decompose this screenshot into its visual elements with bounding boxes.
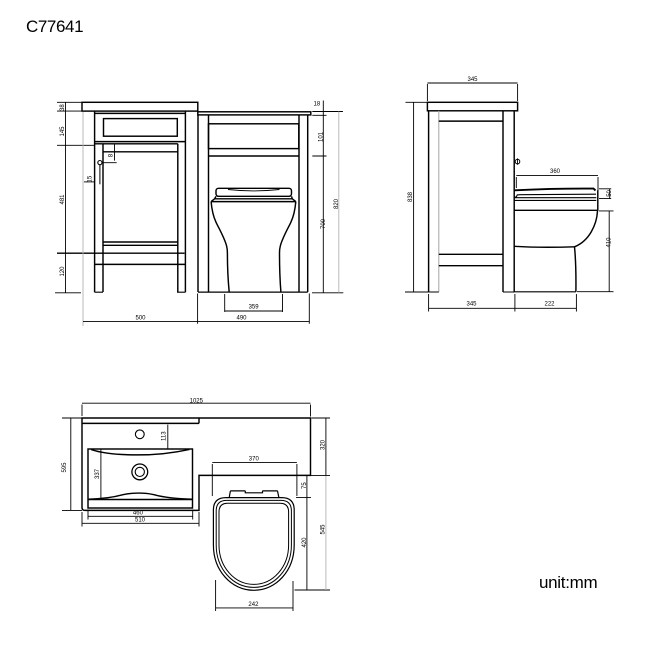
svg-text:unit:mm: unit:mm [539, 573, 597, 592]
svg-text:359: 359 [249, 305, 260, 311]
svg-text:18: 18 [314, 102, 321, 108]
svg-text:101: 101 [319, 131, 325, 142]
svg-text:490: 490 [236, 316, 247, 322]
svg-text:50: 50 [607, 189, 613, 196]
svg-text:700: 700 [321, 218, 327, 229]
svg-text:1025: 1025 [190, 398, 204, 404]
svg-text:222: 222 [544, 302, 555, 308]
svg-text:120: 120 [60, 266, 66, 277]
svg-text:15: 15 [87, 175, 93, 182]
svg-text:410: 410 [606, 237, 612, 248]
svg-text:242: 242 [248, 602, 259, 608]
svg-text:420: 420 [302, 537, 308, 548]
svg-text:838: 838 [408, 191, 414, 202]
svg-text:113: 113 [162, 431, 168, 441]
svg-text:481: 481 [60, 194, 66, 205]
svg-text:345: 345 [467, 77, 478, 83]
svg-text:145: 145 [60, 126, 66, 137]
svg-text:360: 360 [550, 169, 561, 175]
svg-text:C77641: C77641 [26, 17, 83, 36]
svg-text:320: 320 [321, 439, 327, 450]
svg-text:510: 510 [135, 517, 146, 523]
svg-text:460: 460 [133, 510, 144, 516]
svg-text:595: 595 [62, 462, 68, 473]
svg-text:337: 337 [95, 468, 101, 479]
svg-text:545: 545 [321, 524, 327, 535]
svg-text:820: 820 [334, 198, 340, 209]
svg-text:345: 345 [466, 302, 477, 308]
svg-text:500: 500 [135, 316, 146, 322]
svg-text:370: 370 [249, 456, 260, 462]
svg-text:75: 75 [302, 482, 308, 489]
svg-text:38: 38 [60, 104, 66, 111]
